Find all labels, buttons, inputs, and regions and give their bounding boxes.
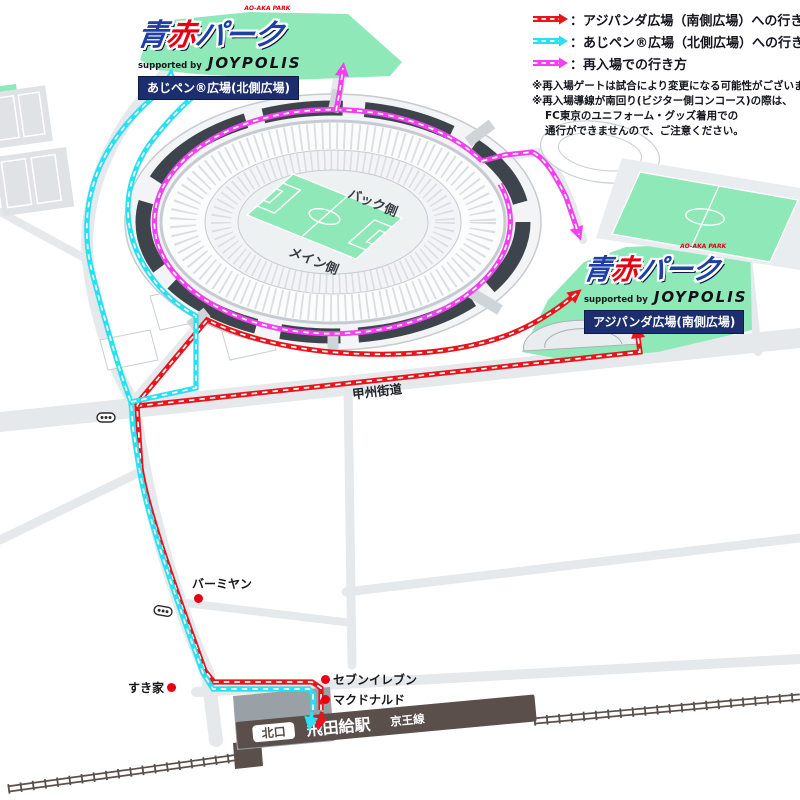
south-plaza-name-box: アジパンダ広場(南側広場)	[584, 310, 744, 334]
railway-left	[8, 754, 241, 791]
tennis-courts	[0, 84, 74, 217]
legend-label: ：再入場での行き方	[570, 54, 687, 73]
traffic-light-icon	[153, 605, 172, 617]
legend-note: FC東京のユニフォーム・グッズ着用での	[532, 109, 798, 124]
north-plaza-name-box: あじペン®広場(北側広場)	[138, 76, 299, 100]
poi-dot-bamiyan	[194, 594, 203, 603]
route-map-page: バック側 メイン側 北口 飛田給駅 京王線	[0, 0, 800, 800]
red-dashed-arrow-icon	[532, 13, 568, 25]
cyan-dashed-arrow-icon	[532, 35, 568, 47]
poi-seven-eleven: セブンイレブン	[321, 671, 417, 688]
traffic-light-icon	[97, 413, 115, 422]
legend-note: 通行ができませんので、ご注意ください。	[532, 124, 798, 139]
supported-by-label: supported by	[584, 295, 648, 305]
route-south	[137, 293, 640, 725]
aoaka-park-title: 青赤パーク AO-AKA PARK	[135, 10, 286, 54]
aoaka-park-logo-north: 青赤パーク AO-AKA PARK supported by JOYPOLIS …	[138, 10, 302, 100]
joypolis-logo: JOYPOLIS	[654, 288, 748, 306]
poi-sukiya: すき家	[128, 679, 176, 696]
poi-bamiyan: バーミヤン	[192, 575, 252, 592]
aoaka-tagline: AO-AKA PARK	[244, 5, 291, 12]
poi-mcdonalds: マクドナルド	[321, 691, 405, 708]
legend-note: ※再入場ゲートは試合により変更になる可能性がございます。	[532, 79, 798, 94]
legend-label: ：アジパンダ広場（南側広場）への行き方	[570, 10, 800, 29]
north-gate-label: 北口	[261, 724, 286, 741]
poi-dot-mcdonalds	[321, 695, 330, 704]
legend-item-reentry: ：再入場での行き方	[532, 52, 798, 74]
legend-note: ※再入場導線が南回り(ビジター側コンコース)の際は、	[532, 94, 798, 109]
aoaka-park-title: 青赤パーク AO-AKA PARK	[581, 248, 722, 288]
joypolis-logo: JOYPOLIS	[208, 54, 302, 72]
legend: ：アジパンダ広場（南側広場）への行き方 ：あじペン®広場（北側広場）への行き方 …	[532, 8, 798, 139]
magenta-dashed-arrow-icon	[532, 57, 568, 69]
legend-item-north: ：あじペン®広場（北側広場）への行き方	[532, 30, 798, 52]
station-arrow-cyan	[310, 712, 312, 725]
poi-dot-seven-eleven	[321, 675, 330, 684]
supported-by-label: supported by	[138, 61, 202, 71]
legend-notes: ※再入場ゲートは試合により変更になる可能性がございます。 ※再入場導線が南回り(…	[532, 79, 798, 139]
legend-item-south: ：アジパンダ広場（南側広場）への行き方	[532, 8, 798, 30]
railway-right	[534, 694, 800, 723]
legend-label: ：あじペン®広場（北側広場）への行き方	[570, 32, 800, 51]
aoaka-tagline: AO-AKA PARK	[679, 243, 726, 250]
poi-dot-sukiya	[167, 683, 176, 692]
aoaka-park-logo-south: 青赤パーク AO-AKA PARK supported by JOYPOLIS …	[584, 248, 748, 334]
